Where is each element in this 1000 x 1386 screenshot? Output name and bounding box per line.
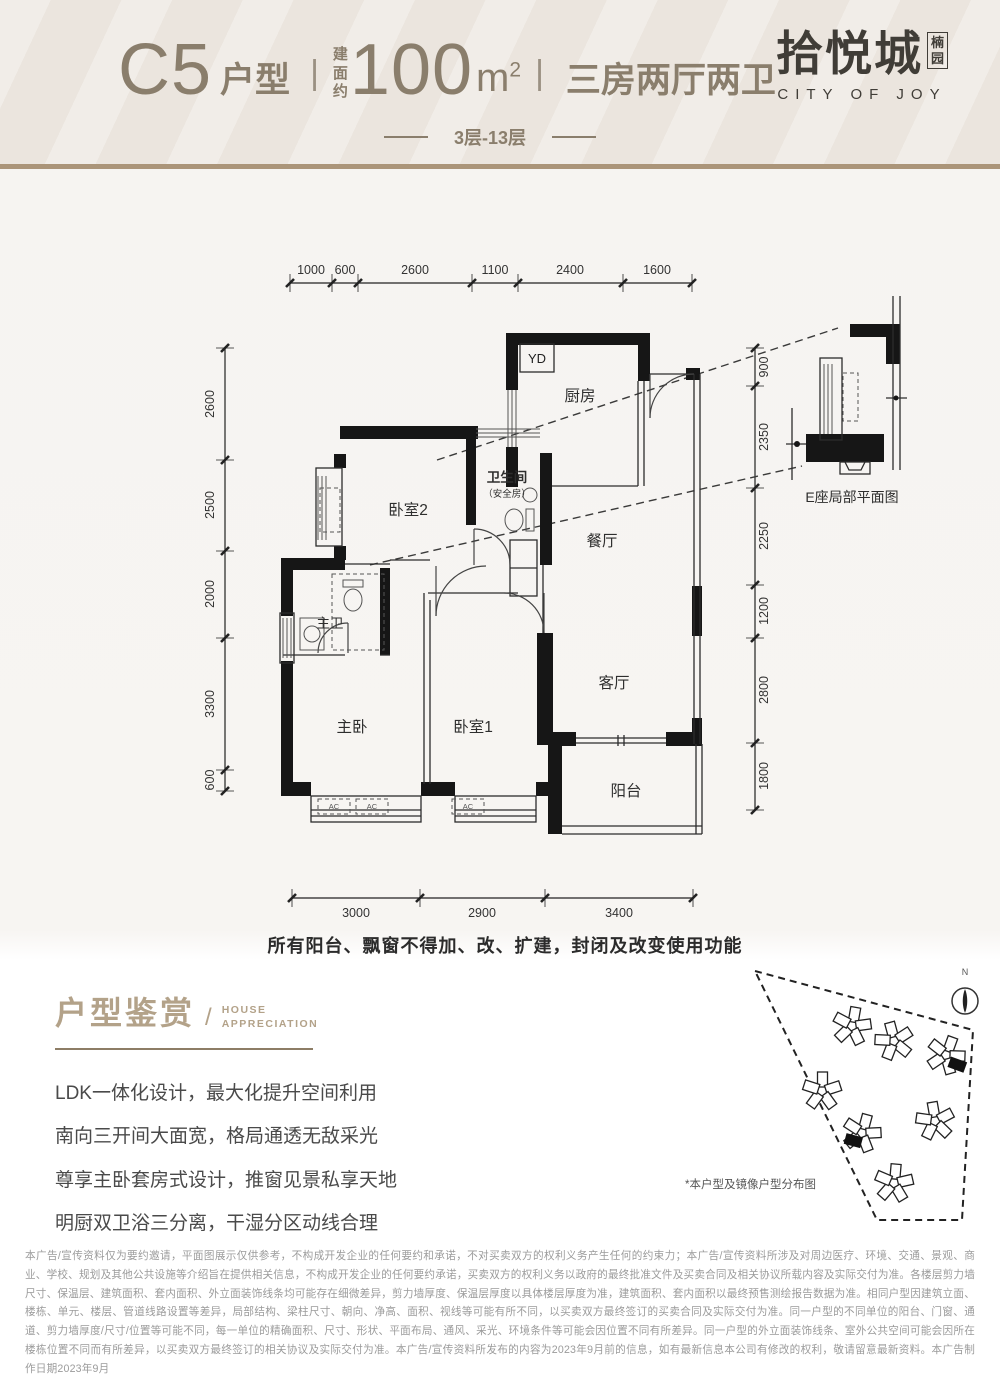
dim-top-6: 1600 [643,263,671,277]
dim-top-3: 2600 [401,263,429,277]
divider-2: | [535,54,544,93]
dim-chain-left [216,344,234,795]
yd-label: YD [528,351,546,366]
north-compass: N [952,967,978,1014]
layout-desc: 三房两厅两卫 [566,52,776,103]
dim-left-3: 2000 [203,580,217,608]
detail-plan-caption: E座局部平面图 [805,489,898,505]
floor-plan: 1000 600 2600 1100 2400 1600 2600 2500 2… [0,248,1000,926]
selling-point-2: 南向三开间大面宽，格局通透无敌采光 [55,1115,385,1158]
dim-right-6: 1800 [757,762,771,790]
plan-note: 所有阳台、飘窗不得加、改、扩建，封闭及改变使用功能 [235,932,775,958]
dim-left-4: 3300 [203,690,217,718]
appreciation-underline [55,1048,313,1050]
highlighted-unit-2 [844,1133,863,1148]
dim-bottom-2: 2900 [468,906,496,920]
dim-right-1: 900 [757,357,771,378]
disclaimer-text: 本广告/宣传资料仅为要约邀请，平面图展示仅供参考，不构成开发企业的任何要约和承诺… [25,1247,975,1378]
ac-label-2: AC [367,802,378,811]
dash-right [552,136,596,138]
room-bath: 卫生间 [487,469,528,485]
dim-left-1: 2600 [203,390,217,418]
dim-bottom-3: 3400 [605,906,633,920]
dim-chain-right [746,344,764,814]
building-clusters [803,1004,972,1203]
dim-top-4: 1100 [482,263,509,277]
appreciation-slash: / [205,1004,212,1032]
appreciation-title-en-1: HOUSE [222,1004,267,1016]
dim-left-5: 600 [203,770,217,791]
exterior-walls [281,333,702,834]
room-master-bath: 主卫 [317,616,344,631]
ac-label-1: AC [329,802,340,811]
dim-left-2: 2500 [203,491,217,519]
dim-right-5: 2800 [757,676,771,704]
dim-right-4: 1200 [757,597,771,625]
dim-right-3: 2250 [757,522,771,550]
room-kitchen: 厨房 [564,387,595,405]
dim-chain-bottom [288,889,697,907]
header-band: C5 户型 | 建面约 100 m2 | 三房两厅两卫 拾悦城 楠园 CITY … [0,0,1000,169]
area-unit-sup: 2 [509,58,521,81]
dim-bottom-1: 3000 [342,906,370,920]
area-unit-m: m [476,56,509,100]
room-bed1: 卧室1 [453,718,493,736]
dim-top-2: 600 [335,263,356,277]
floor-range-label: 3层-13层 [454,124,526,150]
ac-units [318,488,484,814]
floor-range: 3层-13层 [0,124,980,150]
appreciation-title-cn: 户型鉴赏 [55,988,195,1034]
brand-logo: 拾悦城 楠园 CITY OF JOY [776,30,948,103]
room-bed2: 卧室2 [388,501,428,519]
dim-right-2: 2350 [757,423,771,451]
dim-top-1: 1000 [297,263,325,277]
interior-walls [280,374,702,834]
area-unit: m2 [476,56,521,101]
divider-1: | [310,54,319,93]
ac-label-3: AC [463,802,474,811]
detail-plan: E座局部平面图 [786,296,907,505]
brand-badge: 楠园 [927,32,948,69]
selling-point-1: LDK一体化设计，最大化提升空间利用 [55,1072,385,1115]
appreciation-section: 户型鉴赏 / HOUSE APPRECIATION LDK一体化设计，最大化提升… [55,988,385,1245]
poster-page: C5 户型 | 建面约 100 m2 | 三房两厅两卫 拾悦城 楠园 CITY … [0,0,1000,1386]
north-label: N [962,967,969,977]
room-balcony: 阳台 [610,782,641,800]
room-bath-sub: （安全房） [483,488,531,500]
headline: C5 户型 | 建面约 100 m2 | 三房两厅两卫 [118,34,782,106]
brand-name-cn: 拾悦城 [776,30,923,77]
brand-name-en: CITY OF JOY [776,86,948,103]
appreciation-title-en: HOUSE APPRECIATION [222,1003,319,1031]
room-dining: 餐厅 [586,532,617,550]
dim-top-5: 2400 [556,263,584,277]
unit-code: C5 [118,34,212,106]
area-value: 100 [350,34,473,106]
room-living: 客厅 [598,674,629,692]
selling-point-3: 尊享主卧套房式设计，推窗见景私享天地 [55,1159,385,1202]
unit-suffix: 户型 [220,52,290,103]
dash-left [384,136,428,138]
area-prefix: 建面约 [333,46,350,102]
selling-point-4: 明厨双卫浴三分离，干湿分区动线合理 [55,1202,385,1245]
room-master-bed: 主卧 [336,718,367,736]
appreciation-title-en-2: APPRECIATION [222,1018,319,1030]
site-plan: N *本户型及镜像户型分布图 [670,956,1000,1246]
site-plan-caption: *本户型及镜像户型分布图 [685,1177,816,1191]
